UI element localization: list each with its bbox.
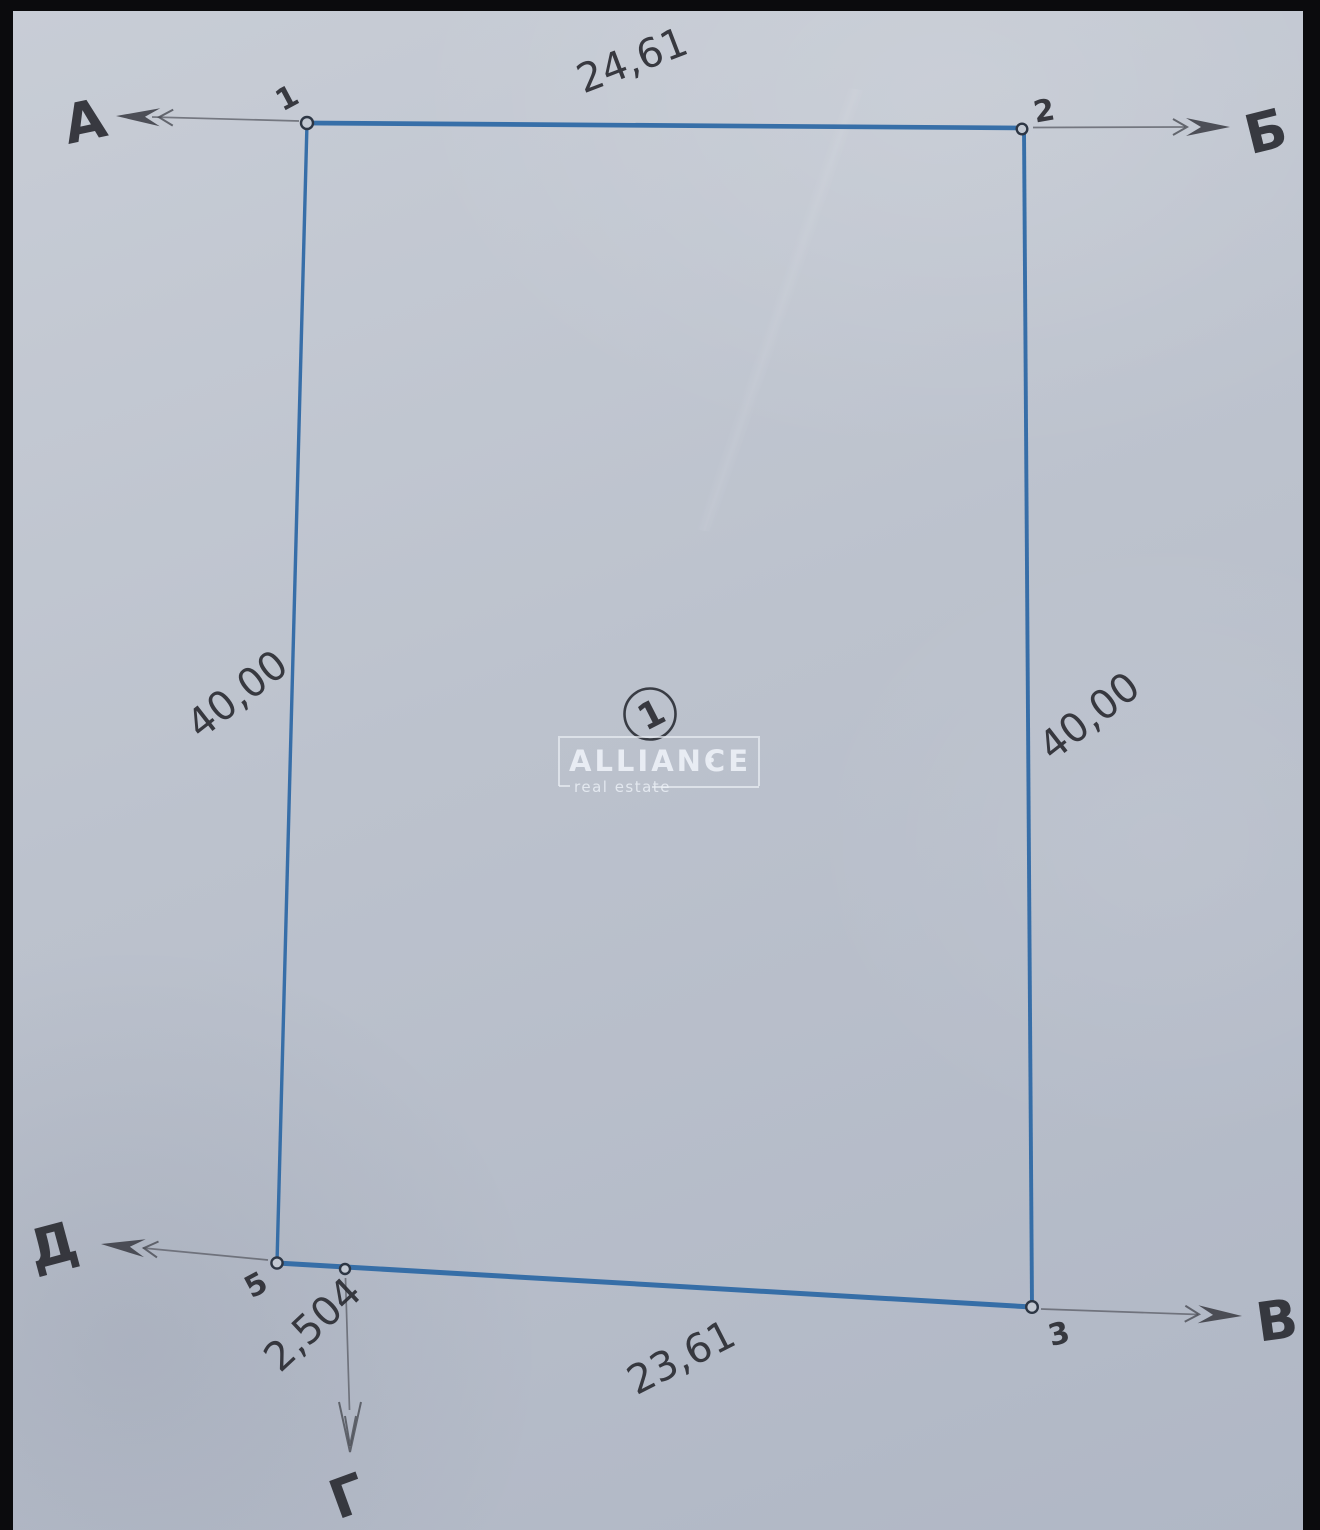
dimension-label-bottom: 23,61 [620,1311,743,1404]
dimension-label-top: 24,61 [571,19,694,103]
dimension-label-offset: 2,504 [255,1269,370,1381]
point-2-label: 2 [1031,92,1058,130]
watermark-brand: ALLIANCE [569,744,751,778]
watermark-c-dot-icon [709,758,714,763]
watermark-tagline: real estate [574,778,671,796]
point-3-label: 3 [1045,1315,1074,1354]
direction-label-v: В [1252,1286,1302,1354]
direction-label-b: Б [1238,96,1293,167]
survey-plan-photo: 1 2 3 5 24,61 40,00 40,00 23,61 2,504 А … [0,0,1320,1530]
direction-arrow-v-icon [1041,1305,1242,1325]
boundary-top-edge [307,123,1024,128]
watermark-logo: ALLIANCE real estate [559,737,759,796]
parcel-number-badge: 1 [625,689,676,740]
dimension-label-right: 40,00 [1030,663,1149,770]
vertex-point-3-marker [1026,1301,1038,1313]
vertex-point-5-marker [271,1257,282,1268]
vertex-point-1-marker [301,117,313,129]
boundary-right-edge [1024,128,1032,1307]
point-1-label: 1 [270,78,305,119]
boundary-bottom-edge [277,1263,1032,1307]
direction-arrow-b-icon [1033,118,1230,136]
direction-label-a: А [58,86,112,156]
point-5-label: 5 [239,1265,274,1306]
parcel-number-label: 1 [631,691,672,739]
direction-label-d: Д [21,1209,84,1282]
direction-arrow-d-icon [100,1235,268,1260]
boundary-left-edge [277,123,307,1263]
direction-label-g: Г [321,1461,375,1530]
survey-drawing: 1 2 3 5 24,61 40,00 40,00 23,61 2,504 А … [0,0,1320,1530]
dimension-label-left: 40,00 [178,641,297,748]
vertex-point-2-marker [1017,124,1028,135]
direction-arrow-a-icon [116,107,299,127]
